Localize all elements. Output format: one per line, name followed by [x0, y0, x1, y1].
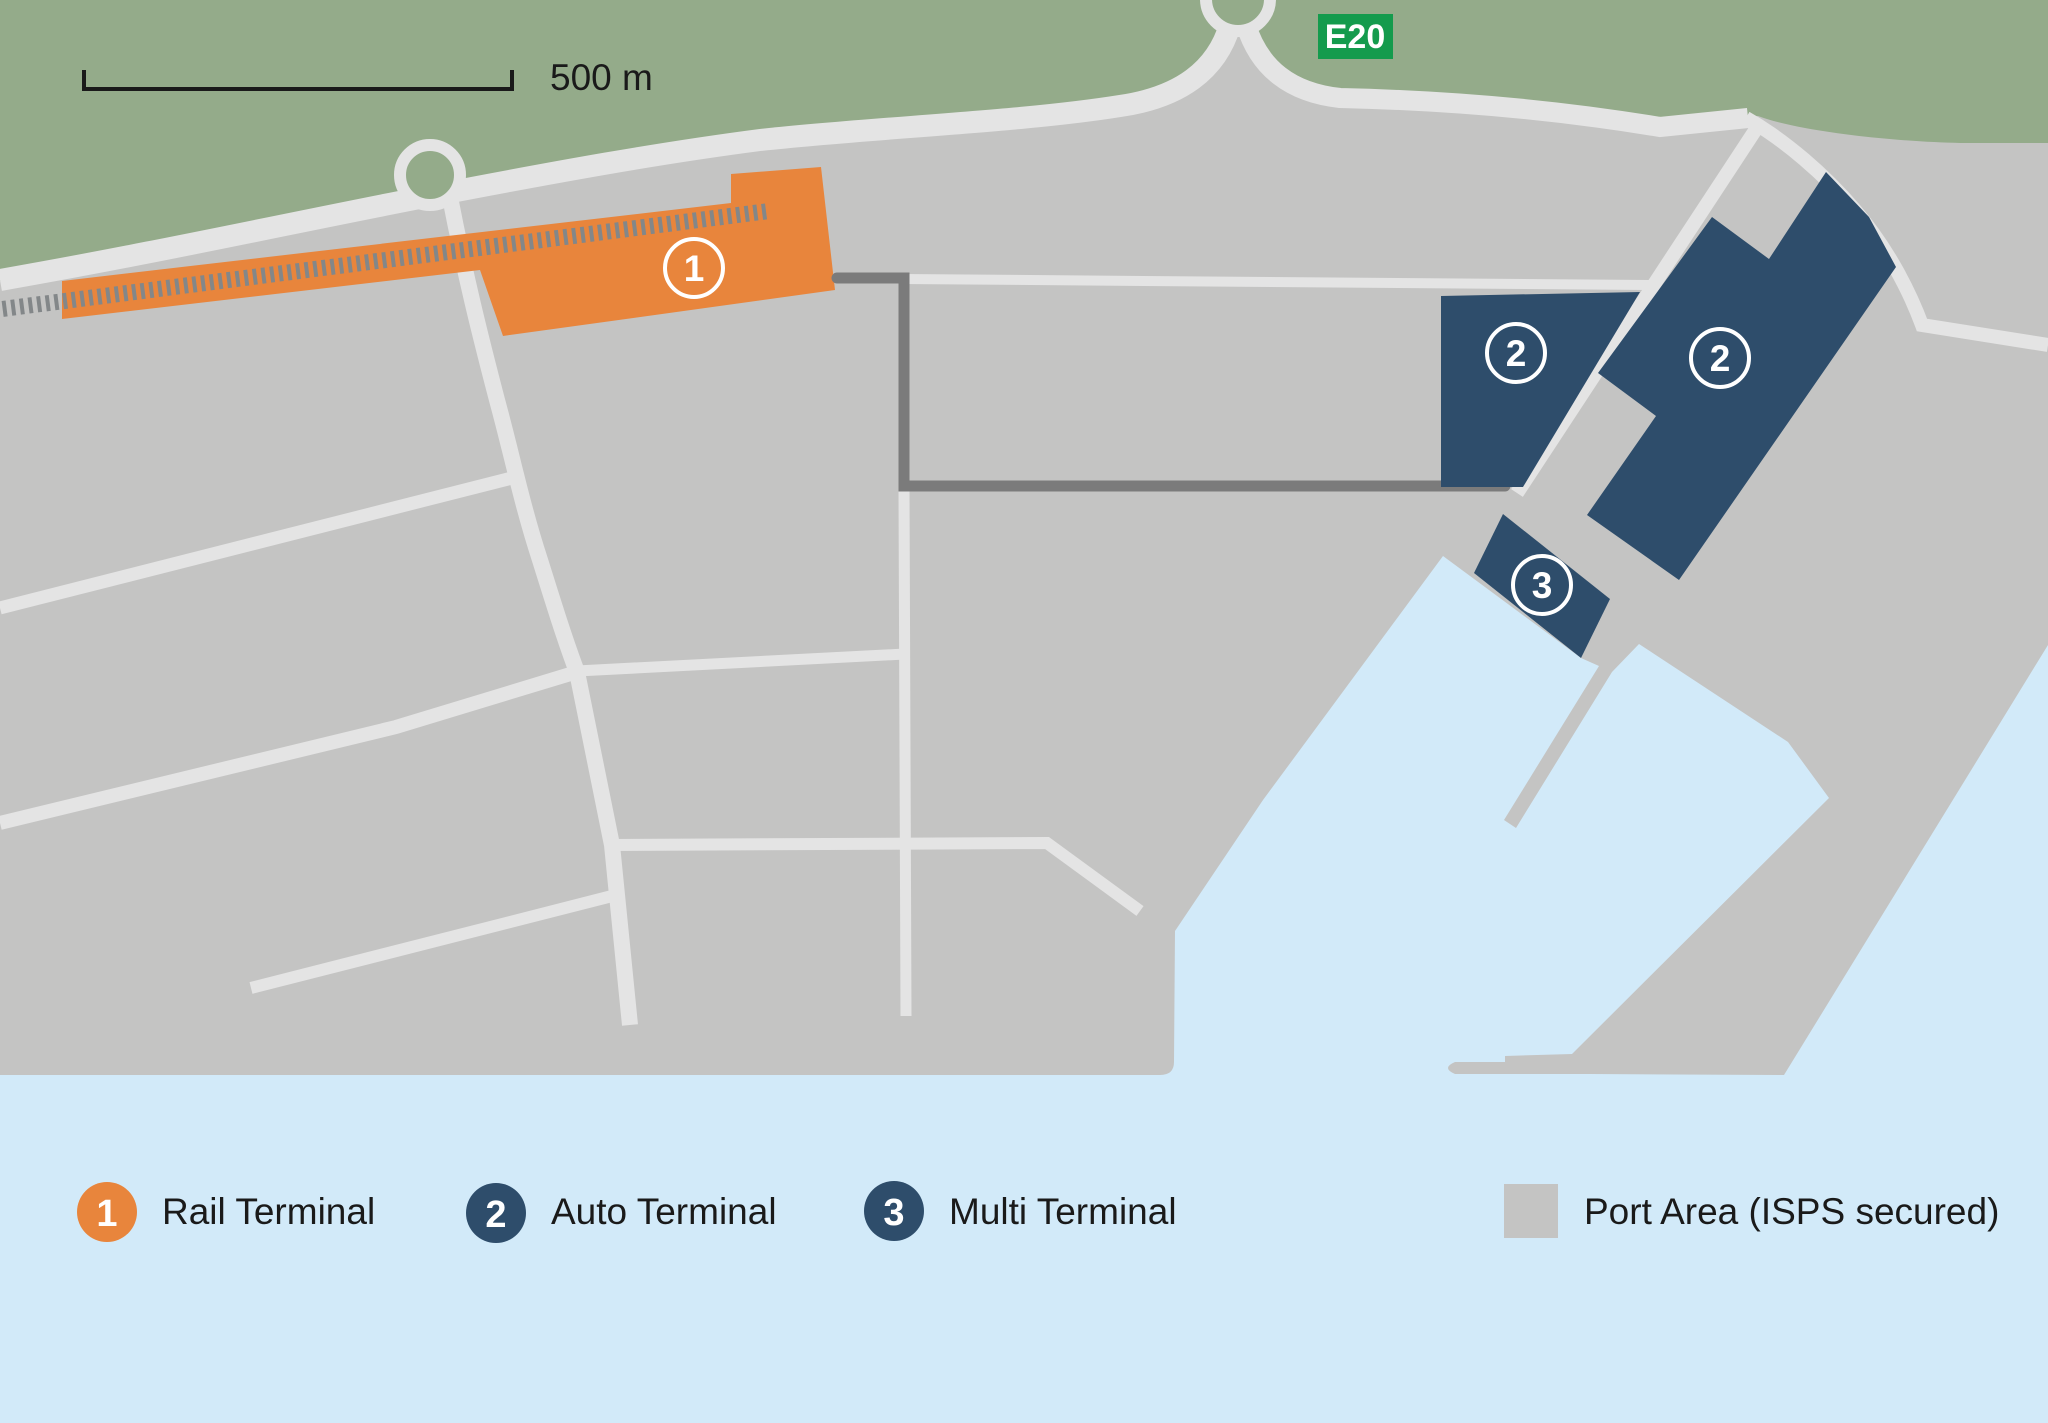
svg-text:E20: E20 [1325, 18, 1386, 56]
svg-text:Rail Terminal: Rail Terminal [162, 1191, 375, 1232]
svg-text:3: 3 [1532, 565, 1553, 606]
svg-text:Auto Terminal: Auto Terminal [551, 1191, 777, 1232]
svg-text:2: 2 [485, 1194, 506, 1236]
svg-text:1: 1 [684, 248, 705, 289]
svg-text:3: 3 [883, 1192, 904, 1234]
svg-text:Multi Terminal: Multi Terminal [949, 1191, 1177, 1232]
svg-text:1: 1 [96, 1193, 117, 1235]
svg-text:500 m: 500 m [550, 57, 653, 98]
svg-text:Port Area (ISPS secured): Port Area (ISPS secured) [1584, 1191, 1999, 1232]
svg-text:2: 2 [1710, 338, 1731, 379]
svg-text:2: 2 [1506, 333, 1527, 374]
